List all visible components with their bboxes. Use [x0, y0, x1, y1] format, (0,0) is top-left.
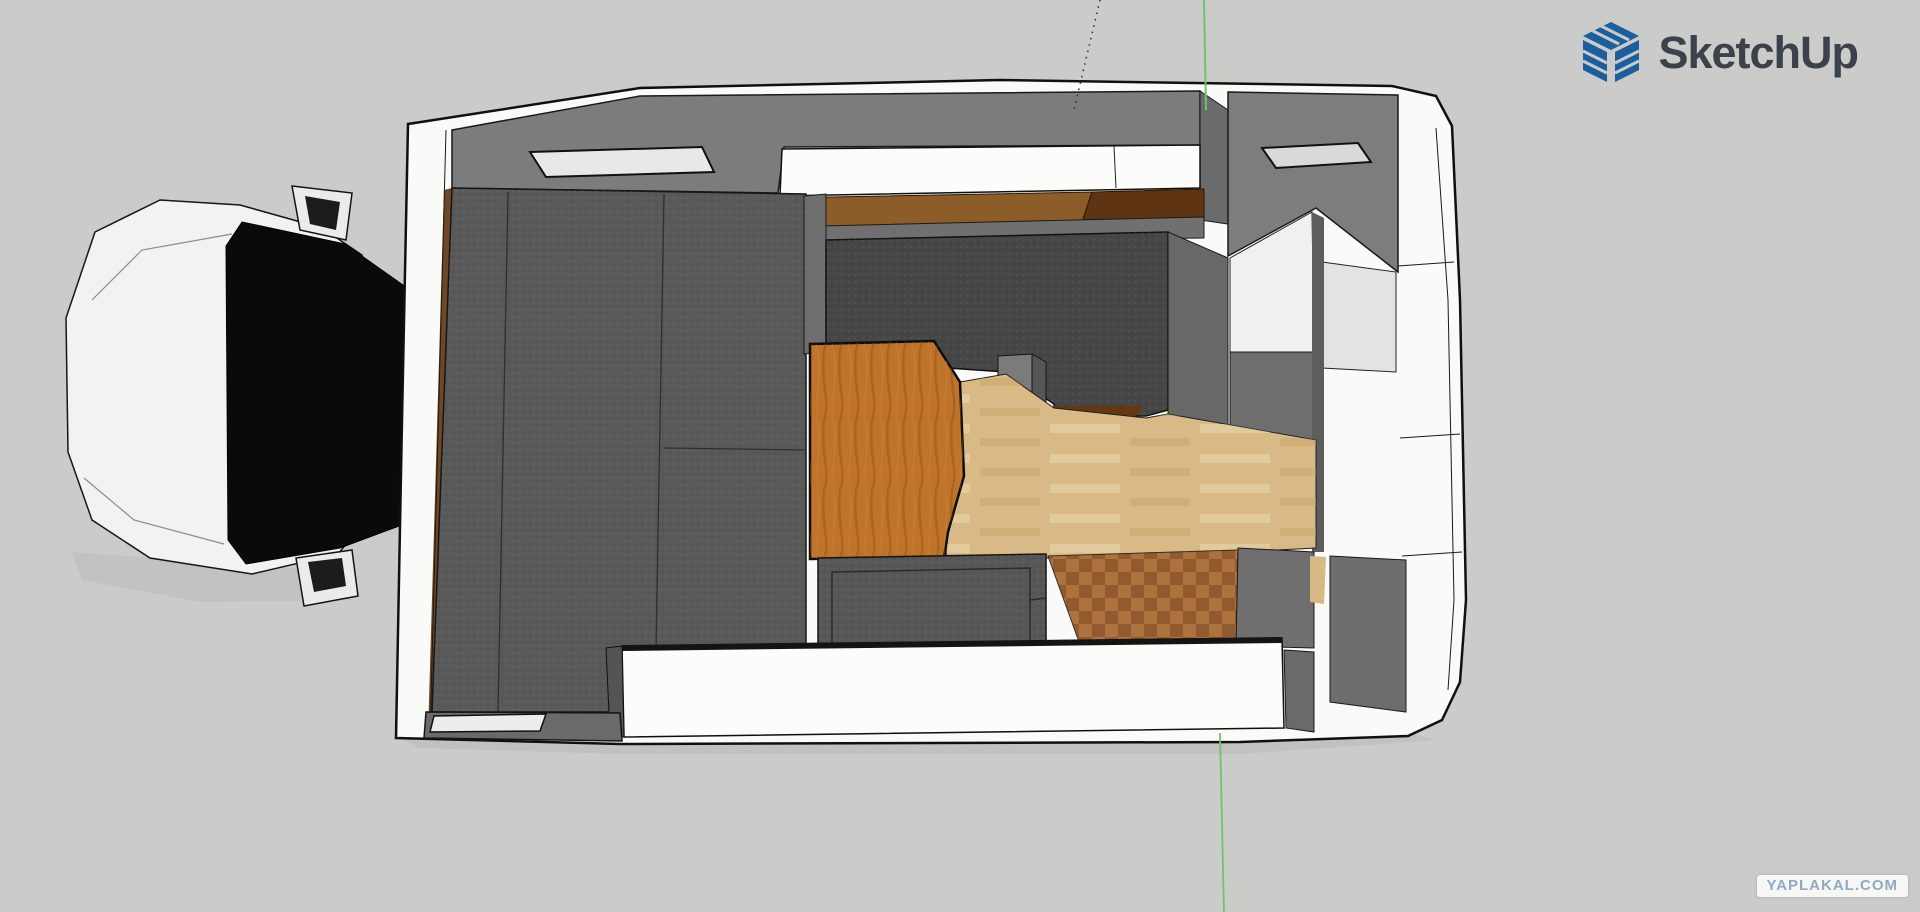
dinette-table-grain	[810, 341, 964, 559]
sketchup-logo-text: SketchUp	[1658, 20, 1858, 86]
model-canvas[interactable]	[0, 0, 1920, 912]
entry-wall-lower[interactable]	[1284, 650, 1314, 732]
sketchup-viewport[interactable]: SketchUp YAPLAKAL.COM	[0, 0, 1920, 912]
sketchup-logo-icon	[1580, 20, 1642, 86]
entry-floor-sliver	[1310, 556, 1326, 604]
bed-kitchen-divider[interactable]	[804, 194, 826, 354]
truck-windshield[interactable]	[226, 222, 410, 564]
axis-green-bottom	[1220, 733, 1224, 912]
bed-mattress-texture	[432, 188, 806, 712]
watermark: YAPLAKAL.COM	[1757, 875, 1908, 897]
window-front-left[interactable]	[530, 147, 714, 177]
entry-gap-wall[interactable]	[1330, 556, 1406, 712]
overhead-counter[interactable]	[780, 145, 1200, 196]
shower-panel[interactable]	[1322, 262, 1396, 372]
entry-wall-upper[interactable]	[1236, 548, 1314, 648]
sketchup-logo: SketchUp	[1580, 20, 1858, 86]
truck-mirror-bottom-glass	[308, 558, 346, 592]
window-bottom[interactable]	[430, 714, 546, 732]
white-bench[interactable]	[622, 638, 1284, 737]
kitchen-right-wall[interactable]	[1168, 232, 1228, 440]
